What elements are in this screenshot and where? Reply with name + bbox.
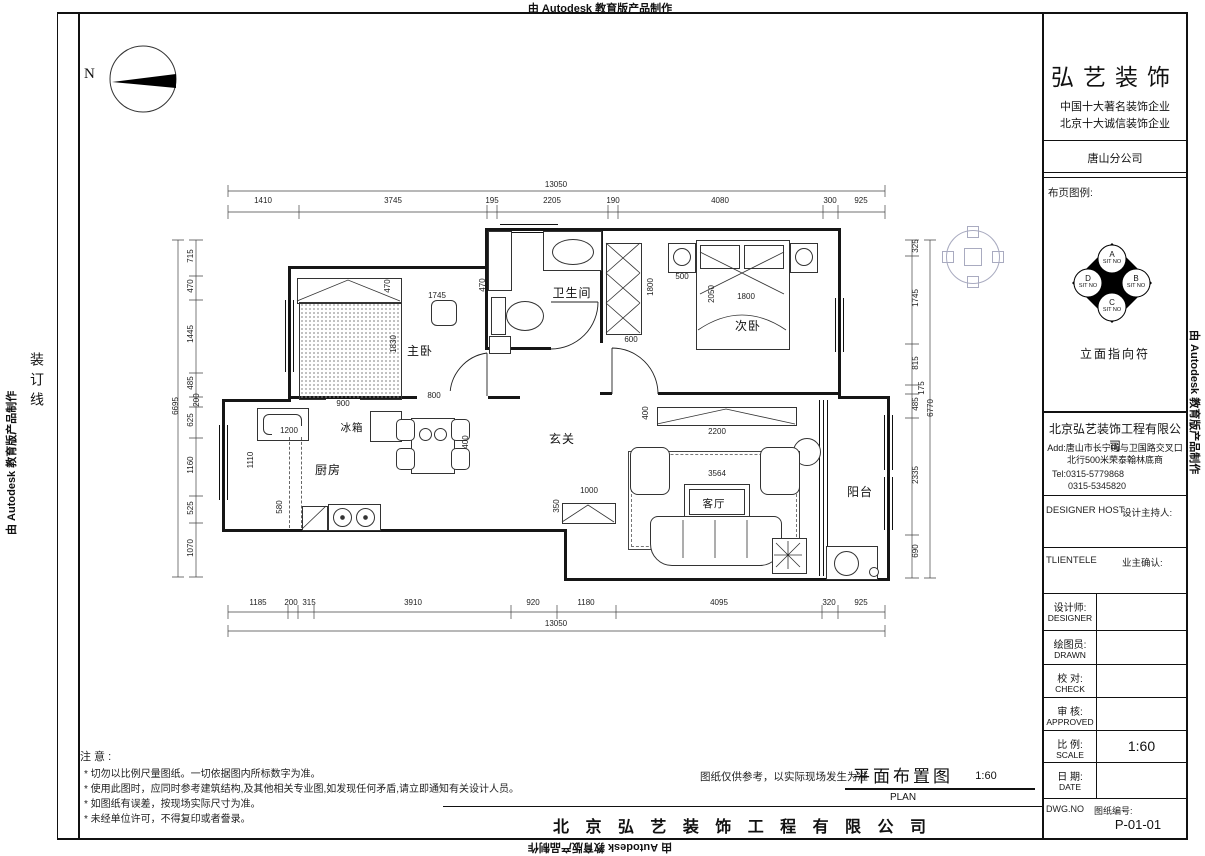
room-label-balcony: 阳台 <box>830 483 890 500</box>
indicator-square-s <box>967 276 979 288</box>
dim-label: 2050 <box>707 277 717 311</box>
bath-cabinet <box>488 231 512 291</box>
row-approved-cn: 审 核: <box>1044 703 1096 718</box>
dim-label: 3564 <box>700 469 734 479</box>
pillow <box>700 245 740 269</box>
dim-label: 500 <box>665 272 699 282</box>
note-item: * 未经单位许可，不得复印或者誊录。 <box>84 810 251 825</box>
toilet-tank <box>491 297 506 335</box>
tv-cabinet <box>657 407 797 426</box>
dim-label: 600 <box>614 335 648 345</box>
dim-label: 400 <box>641 396 651 430</box>
dim-label: 485 <box>911 387 921 421</box>
dim-label-total: 13050 <box>539 619 573 629</box>
autodesk-banner-left: 由 Autodesk 教育版产品制作 <box>3 391 19 535</box>
dim-label: 325 <box>911 229 921 263</box>
dim-label: 800 <box>417 391 451 400</box>
dim-label: 2200 <box>700 427 734 437</box>
dim-label: 1410 <box>246 196 280 206</box>
row-approved-en: APPROVED <box>1044 717 1096 727</box>
room-label-kitchen: 厨房 <box>298 461 358 478</box>
dim-label-total: 6695 <box>171 389 181 423</box>
dim-label-total: 6770 <box>926 391 936 425</box>
designer-host-en: DESIGNER HOST <box>1046 505 1125 516</box>
dim-label: 4095 <box>702 598 736 608</box>
indicator-square-e <box>992 251 1004 263</box>
elevation-symbol-label: 立面指向符 <box>1044 345 1186 362</box>
indicator-square-n <box>967 226 979 238</box>
branch-name: 唐山分公司 <box>1044 150 1186 166</box>
bath-sink <box>552 239 594 265</box>
dim-label: 4080 <box>703 196 737 206</box>
row-designer-cn: 设计师: <box>1044 599 1096 614</box>
pillow <box>744 245 784 269</box>
dim-label: 1745 <box>911 281 921 315</box>
room-label-master: 主卧 <box>390 342 450 359</box>
dim-label: 1070 <box>186 531 196 565</box>
dim-label: 2205 <box>535 196 569 206</box>
elev-sit-d: SIT NO <box>1072 283 1104 289</box>
tb-divider <box>1044 593 1186 594</box>
dim-label: 470 <box>478 268 488 302</box>
footer-divider <box>443 806 1042 807</box>
dim-label: 900 <box>326 399 360 408</box>
window <box>884 415 893 470</box>
note-item: * 使用此图时，应同时参考建筑结构,及其他相关专业图,如发现任何矛盾,请立即通知… <box>84 780 519 795</box>
sofa <box>650 516 782 566</box>
clientele-cn: 业主确认: <box>1122 555 1163 569</box>
dim-label: 1445 <box>186 317 196 351</box>
floor-drain <box>869 567 879 577</box>
note-item: * 切勿以比例尺量图纸。一切依据图内所标数字为准。 <box>84 765 321 780</box>
elev-sit-c: SIT NO <box>1096 307 1128 313</box>
notes-title: 注 意 : <box>80 748 111 764</box>
dim-label: 525 <box>186 491 196 525</box>
dim-label: 470 <box>383 269 393 303</box>
row-check-cn: 校 对: <box>1044 670 1096 685</box>
dim-label: 3910 <box>396 598 430 608</box>
tb-divider <box>1044 798 1186 799</box>
brand-name: 弘艺装饰 <box>1044 58 1186 92</box>
wall <box>222 529 567 532</box>
binding-line-label: 装订线 <box>27 352 47 412</box>
dim-label: 1200 <box>272 426 306 435</box>
dim-label: 715 <box>186 239 196 273</box>
armchair <box>630 447 670 495</box>
tb-divider <box>1044 177 1186 178</box>
plan-title: 平面布置图 <box>848 762 958 787</box>
corner-unit <box>302 506 328 531</box>
wall <box>564 529 567 580</box>
row-check-en: CHECK <box>1044 684 1096 694</box>
armchair <box>760 447 800 495</box>
designer-host-cn: 设计主持人: <box>1122 505 1172 519</box>
row-drawn-en: DRAWN <box>1044 650 1096 660</box>
outer-left-line <box>57 12 58 840</box>
dim-label: 690 <box>911 534 921 568</box>
tb-address2: 北行500米荣泰翰林底商 <box>1044 453 1186 466</box>
cad-sheet: { "banner": { "autodesk": "由 Autodesk 教育… <box>0 0 1205 852</box>
autodesk-banner-right: 由 Autodesk 教育版产品制作 <box>1187 330 1203 474</box>
window <box>285 300 294 372</box>
dim-label: 1800 <box>646 270 656 304</box>
plan-linework <box>0 0 1205 852</box>
master-bed <box>299 302 402 400</box>
plate <box>419 428 432 441</box>
row-drawn-cn: 绘图员: <box>1044 636 1096 651</box>
dim-label-total: 13050 <box>539 180 573 190</box>
nightstand-lamp <box>795 248 813 266</box>
dim-label: 1000 <box>572 486 606 496</box>
dim-label: 1800 <box>729 292 763 302</box>
legend-label: 布页图例: <box>1048 185 1093 200</box>
dim-label: 1180 <box>569 598 603 608</box>
wall <box>222 399 291 402</box>
dim-label: 1745 <box>420 291 454 301</box>
row-date-cn: 日 期: <box>1044 768 1096 783</box>
elev-letter-b: B <box>1130 274 1142 283</box>
dim-label: 190 <box>596 196 630 206</box>
dim-label: 470 <box>186 269 196 303</box>
north-label: N <box>84 66 95 83</box>
elev-letter-c: C <box>1106 298 1118 307</box>
dim-label: 2335 <box>911 458 921 492</box>
tb-divider <box>1044 697 1186 698</box>
indicator-center <box>964 248 982 266</box>
burner <box>356 508 375 527</box>
indicator-square-w <box>942 251 954 263</box>
frame-left <box>78 12 80 840</box>
dwg-no-cn: 图纸编号: <box>1094 804 1133 817</box>
plan-scale: 1:60 <box>966 770 1006 782</box>
dim-label: 920 <box>516 598 550 608</box>
shoe-cabinet <box>562 503 616 524</box>
elev-letter-a: A <box>1106 250 1118 259</box>
clientele-en: TLIENTELE <box>1046 555 1097 566</box>
plan-title-underline <box>845 788 1035 790</box>
counter-dash <box>289 437 290 528</box>
row-date-en: DATE <box>1044 782 1096 792</box>
bath-shelf <box>489 336 511 354</box>
plant-box <box>772 538 807 574</box>
row-designer-en: DESIGNER <box>1044 613 1096 623</box>
closet <box>606 243 642 335</box>
tb-tel1: Tel:0315-5779868 <box>1052 469 1124 479</box>
dim-label: 3745 <box>376 196 410 206</box>
tb-divider <box>1044 664 1186 665</box>
tb-divider <box>1044 547 1186 548</box>
dim-label: 925 <box>844 196 878 206</box>
elev-letter-d: D <box>1082 274 1094 283</box>
footer-company: 北 京 弘 艺 装 饰 工 程 有 限 公 司 <box>443 813 1042 837</box>
plan-title-en: PLAN <box>848 792 958 803</box>
tb-divider <box>1044 411 1186 413</box>
room-label-bath: 卫生间 <box>542 284 602 301</box>
brand-slogan1: 中国十大著名装饰企业 <box>1044 98 1186 114</box>
burner <box>333 508 352 527</box>
window <box>219 425 228 500</box>
row-scale-value: 1:60 <box>1097 738 1186 754</box>
tb-divider <box>1044 172 1186 173</box>
dim-label: 195 <box>475 196 509 206</box>
stool <box>431 300 457 326</box>
wall <box>600 392 612 395</box>
dwg-no-en: DWG.NO <box>1046 804 1084 814</box>
wall <box>488 396 520 399</box>
row-scale-en: SCALE <box>1044 750 1096 760</box>
autodesk-banner-bottom: 由 Autodesk 教育版产品制作 <box>450 840 750 856</box>
tb-divider <box>1044 630 1186 631</box>
washer-drum <box>834 551 859 576</box>
room-label-hall: 玄关 <box>532 430 592 447</box>
dim-label: 1160 <box>186 448 196 482</box>
row-scale-cn: 比 例: <box>1044 736 1096 751</box>
tb-divider <box>1044 762 1186 763</box>
wall <box>658 392 838 395</box>
tb-divider <box>1044 140 1186 141</box>
elev-sit-a: SIT NO <box>1096 259 1128 265</box>
dim-label: 925 <box>844 598 878 608</box>
dim-label: 1185 <box>241 598 275 608</box>
disclaimer: 图纸仅供参考，以实际现场发生为准 <box>700 769 868 784</box>
dim-label: 350 <box>552 489 562 523</box>
nightstand-lamp <box>673 248 691 266</box>
dim-label: 320 <box>812 598 846 608</box>
dim-label: 625 <box>186 403 196 437</box>
tb-tel2: 0315-5345820 <box>1068 481 1126 491</box>
tb-divider <box>1044 730 1186 731</box>
note-item: * 如图纸有误差，按现场实际尺寸为准。 <box>84 795 261 810</box>
dining-table <box>411 418 455 474</box>
toilet-bowl <box>506 301 544 331</box>
window <box>835 298 844 352</box>
room-label-bed2: 次卧 <box>718 317 778 334</box>
tb-divider <box>1044 495 1186 496</box>
dwg-number: P-01-01 <box>1090 817 1186 832</box>
chair <box>396 419 415 441</box>
plate <box>434 428 447 441</box>
chair <box>396 448 415 470</box>
dim-label: 1110 <box>246 443 256 477</box>
brand-slogan2: 北京十大诚信装饰企业 <box>1044 115 1186 131</box>
dim-label: 400 <box>461 425 471 459</box>
elev-sit-b: SIT NO <box>1120 283 1152 289</box>
tb-value-divider <box>1096 593 1097 798</box>
dim-label: 580 <box>275 490 285 524</box>
room-label-living: 客厅 <box>684 496 744 511</box>
dim-label: 300 <box>813 196 847 206</box>
autodesk-banner-top: 由 Autodesk 教育版产品制作 <box>450 0 750 16</box>
wall <box>838 396 890 399</box>
dim-label: 315 <box>292 598 326 608</box>
room-label-fridge: 冰箱 <box>322 420 382 435</box>
